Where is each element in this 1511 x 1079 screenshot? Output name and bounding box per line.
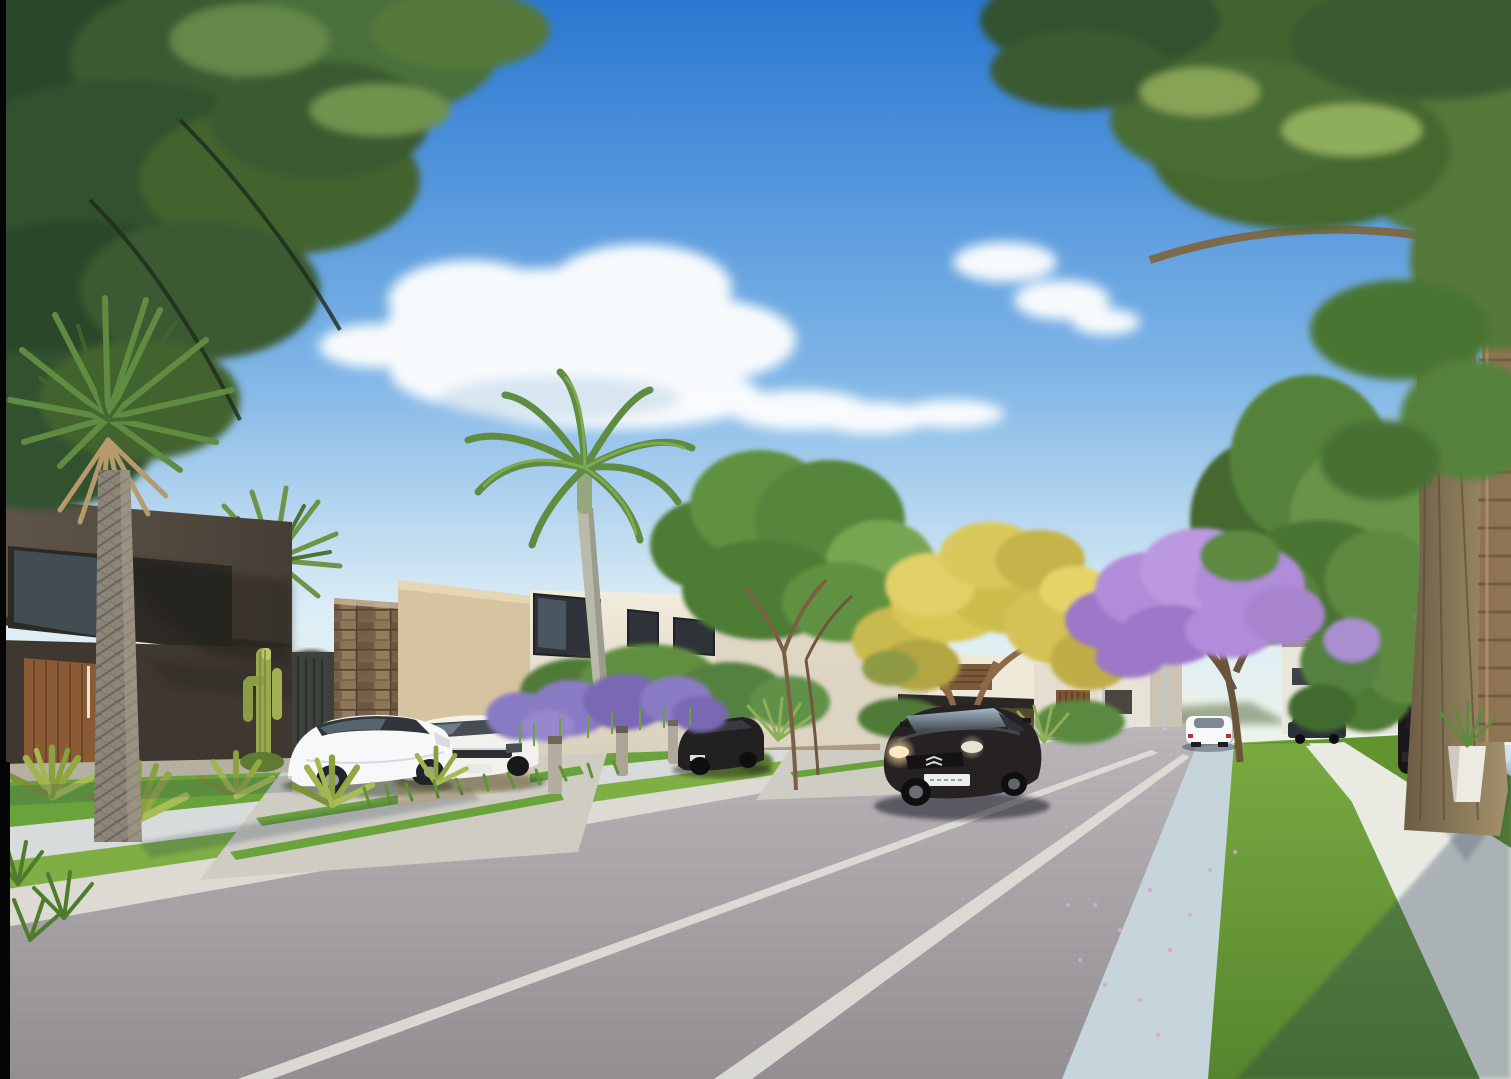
wheel: [739, 752, 757, 768]
headlight: [961, 741, 983, 753]
headlight: [889, 746, 909, 758]
street-render: [0, 0, 1511, 1079]
window-reflection: [538, 598, 566, 650]
headlight: [506, 743, 522, 753]
license-plate: [466, 764, 492, 773]
citroen-sedan: [874, 705, 1050, 820]
wheel: [507, 756, 529, 776]
scene-canvas: [0, 0, 1511, 1079]
wheel: [690, 757, 710, 775]
image-edge-strip-bottom: [0, 762, 10, 1079]
wheel: [1295, 734, 1305, 744]
distant-white-car: [1182, 716, 1236, 752]
mirror: [900, 722, 909, 727]
window: [628, 610, 658, 648]
wheel: [1329, 734, 1339, 744]
rear-window: [1194, 718, 1224, 728]
door-pull: [87, 666, 90, 718]
tail-light: [1188, 734, 1193, 738]
mirror: [1022, 718, 1031, 723]
tail-light: [1226, 734, 1231, 738]
